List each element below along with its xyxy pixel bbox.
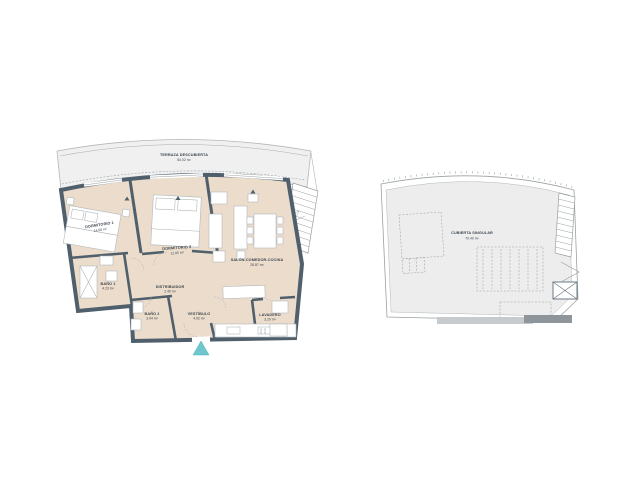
svg-text:28.87 m²: 28.87 m² [250, 263, 264, 267]
svg-text:TERRAZA DESCUBIERTA: TERRAZA DESCUBIERTA [160, 153, 208, 157]
svg-text:CUBIERTA SINGULAR: CUBIERTA SINGULAR [451, 231, 493, 235]
svg-text:BAÑO 2: BAÑO 2 [145, 311, 160, 316]
label-bano-2: BAÑO 2 3.94 m² [145, 311, 160, 321]
roof-plan: CUBIERTA SINGULAR 70.40 m² [381, 172, 579, 324]
dining-table [254, 214, 276, 248]
svg-text:2.40 m²: 2.40 m² [164, 290, 176, 294]
svg-text:VESTÍBULO: VESTÍBULO [188, 311, 211, 316]
svg-text:70.40 m²: 70.40 m² [465, 237, 479, 241]
plans-drawing: TERRAZA DESCUBIERTA 84.02 m² DORMITORIO … [0, 0, 640, 480]
entrance-marker [193, 341, 209, 355]
svg-text:LAVADERO: LAVADERO [259, 313, 281, 317]
toilet [106, 271, 117, 281]
floorplan-sheet: TERRAZA DESCUBIERTA 84.02 m² DORMITORIO … [0, 0, 640, 480]
kitchen-island [223, 285, 265, 298]
svg-text:4.23 m²: 4.23 m² [102, 287, 114, 291]
apartment-floor-plan: TERRAZA DESCUBIERTA 84.02 m² DORMITORIO … [57, 140, 318, 356]
entrance-opening [192, 339, 210, 340]
shaft-x-box [553, 282, 577, 299]
sink [227, 327, 240, 334]
svg-text:84.02 m²: 84.02 m² [177, 158, 191, 162]
roof-edge-band [437, 317, 533, 324]
svg-text:SALÓN-COMEDOR-COCINA: SALÓN-COMEDOR-COCINA [231, 257, 284, 262]
svg-text:4.92 m²: 4.92 m² [193, 317, 205, 321]
svg-text:3.94 m²: 3.94 m² [146, 317, 158, 321]
svg-text:DISTRIBUIDOR: DISTRIBUIDOR [156, 285, 185, 289]
roof-edge-band-dark [524, 315, 572, 323]
svg-text:BAÑO 1: BAÑO 1 [101, 281, 116, 286]
bed-dormitorio-2 [151, 195, 202, 247]
svg-text:3.29 m²: 3.29 m² [264, 318, 276, 322]
label-bano-1: BAÑO 1 4.23 m² [101, 281, 116, 291]
washbasin [100, 256, 113, 265]
